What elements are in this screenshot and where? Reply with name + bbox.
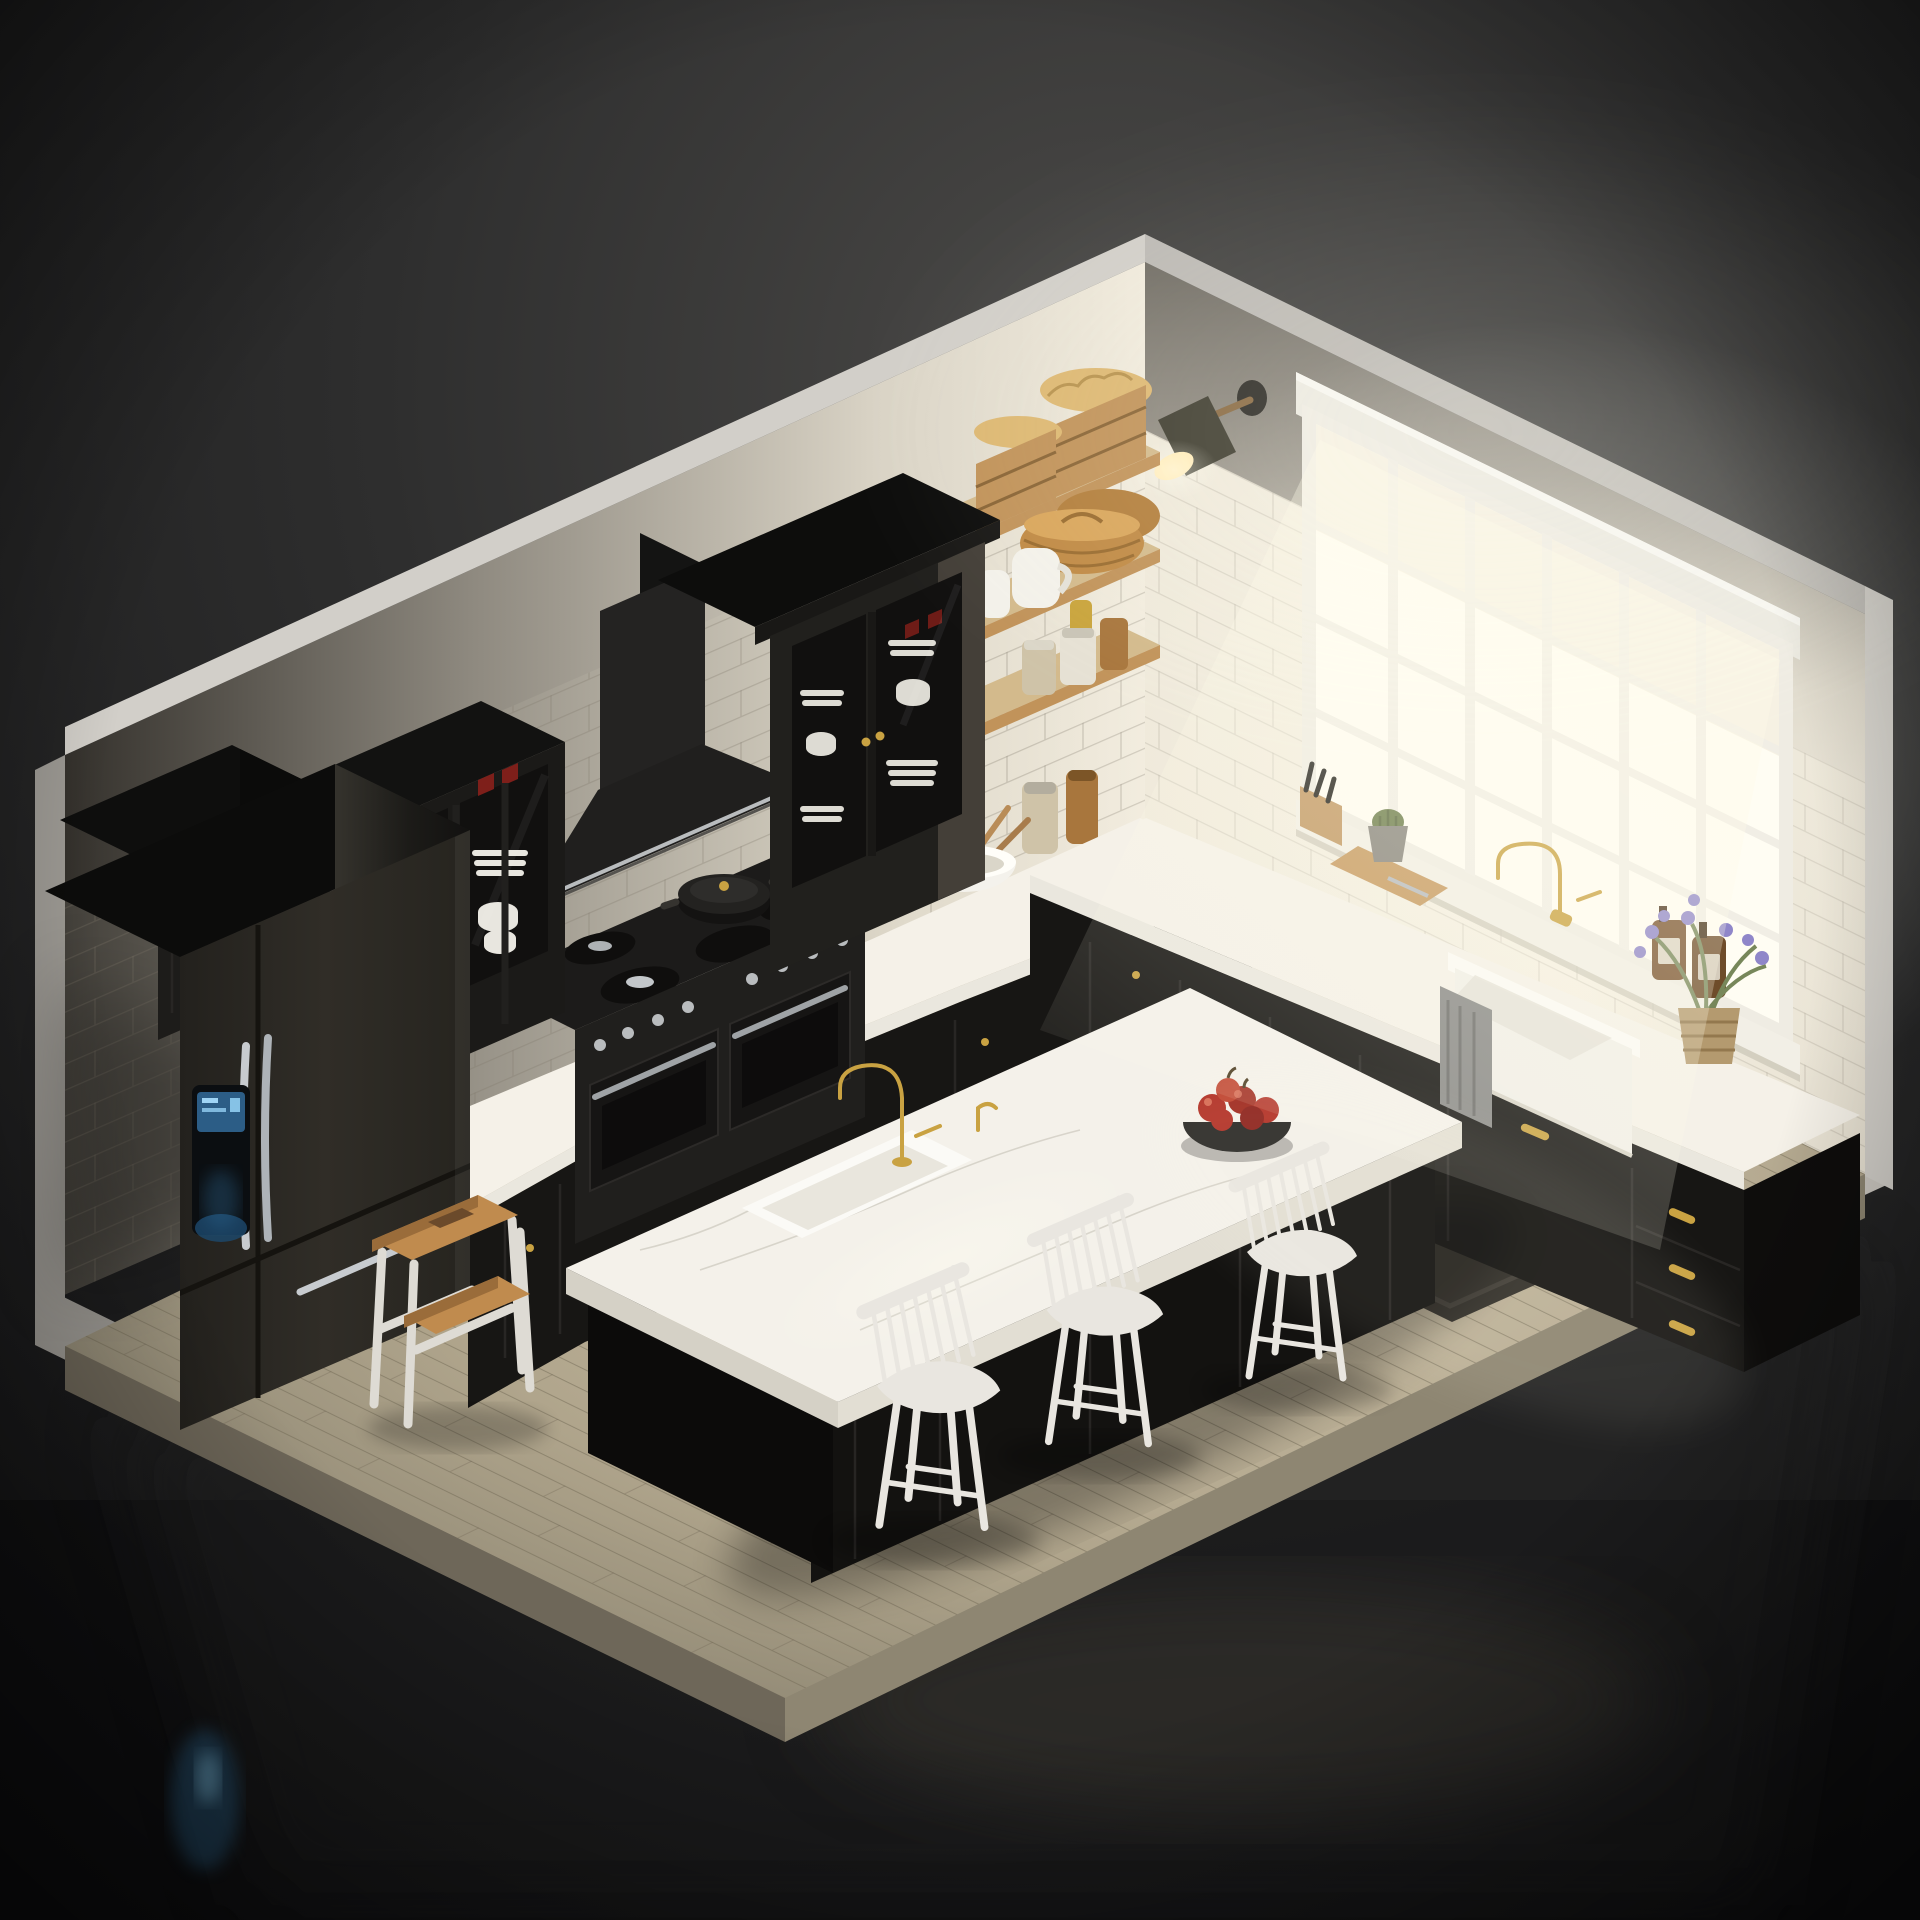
vignette [0,0,1920,1920]
kitchen-render: Isometric 3D render of a dark farmhouse-… [0,0,1920,1920]
render-stage: Isometric 3D render of a dark farmhouse-… [0,0,1920,1920]
isometric-kitchen-scene [0,0,1920,1920]
